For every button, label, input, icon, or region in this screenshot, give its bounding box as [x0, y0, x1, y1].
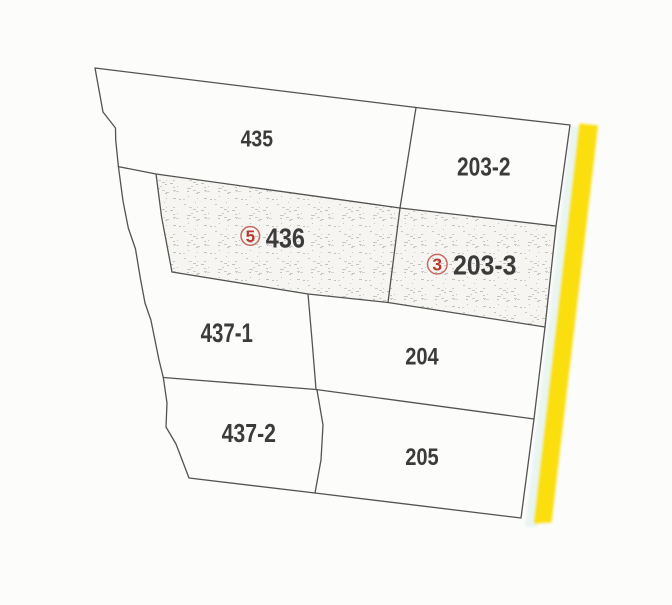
svg-text:3: 3 — [432, 255, 442, 275]
svg-text:204: 204 — [405, 344, 439, 370]
svg-text:435: 435 — [241, 125, 274, 151]
svg-text:205: 205 — [405, 445, 439, 471]
svg-text:203-2: 203-2 — [457, 154, 511, 182]
svg-text:437-1: 437-1 — [201, 318, 253, 348]
svg-text:436: 436 — [266, 223, 305, 254]
svg-text:437-2: 437-2 — [222, 420, 276, 448]
svg-text:203-3: 203-3 — [453, 249, 516, 280]
svg-text:5: 5 — [246, 227, 255, 246]
